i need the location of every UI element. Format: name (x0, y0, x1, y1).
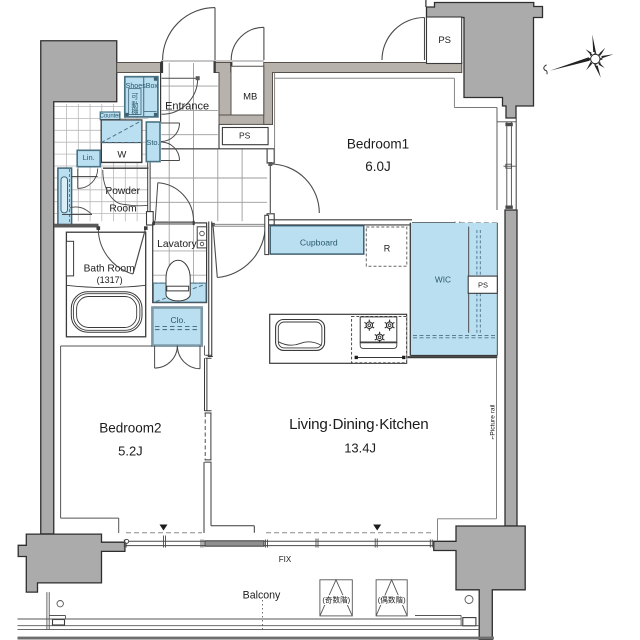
svg-text:Powder: Powder (105, 186, 140, 197)
svg-text:可: 可 (131, 93, 138, 101)
svg-text:Clo.: Clo. (170, 315, 185, 325)
svg-text:Cupboard: Cupboard (300, 237, 338, 247)
svg-text:Lin.: Lin. (83, 153, 95, 162)
svg-text:ShoesBox: ShoesBox (126, 82, 159, 90)
svg-text:5.2J: 5.2J (118, 443, 143, 458)
svg-text:Living·Dining·Kitchen: Living·Dining·Kitchen (289, 416, 428, 433)
svg-text:PS: PS (239, 130, 251, 140)
svg-text:⌐Picture rail: ⌐Picture rail (489, 404, 496, 440)
svg-text:Bath Room: Bath Room (84, 264, 135, 275)
svg-text:(1317): (1317) (97, 275, 123, 285)
svg-text:Sto.: Sto. (146, 138, 159, 147)
svg-text:(偶数階): (偶数階) (378, 594, 406, 604)
svg-text:Lavatory: Lavatory (157, 239, 197, 250)
svg-text:FIX: FIX (279, 555, 292, 564)
svg-text:WIC: WIC (435, 275, 451, 285)
svg-text:棚: 棚 (131, 107, 138, 116)
svg-text:Bedroom1: Bedroom1 (347, 136, 409, 151)
svg-text:W: W (117, 149, 126, 160)
svg-text:6.0J: 6.0J (365, 159, 391, 174)
svg-text:Entrance: Entrance (165, 101, 209, 113)
svg-text:動: 動 (131, 100, 138, 109)
svg-text:Bedroom2: Bedroom2 (99, 420, 161, 435)
svg-text:PS: PS (438, 35, 451, 46)
svg-text:Balcony: Balcony (243, 589, 281, 601)
svg-text:R: R (384, 244, 391, 254)
svg-text:PS: PS (478, 280, 488, 289)
svg-text:13.4J: 13.4J (344, 440, 376, 455)
svg-text:Counter: Counter (100, 114, 121, 120)
svg-text:MB: MB (243, 92, 257, 103)
svg-text:(奇数階): (奇数階) (322, 594, 350, 604)
